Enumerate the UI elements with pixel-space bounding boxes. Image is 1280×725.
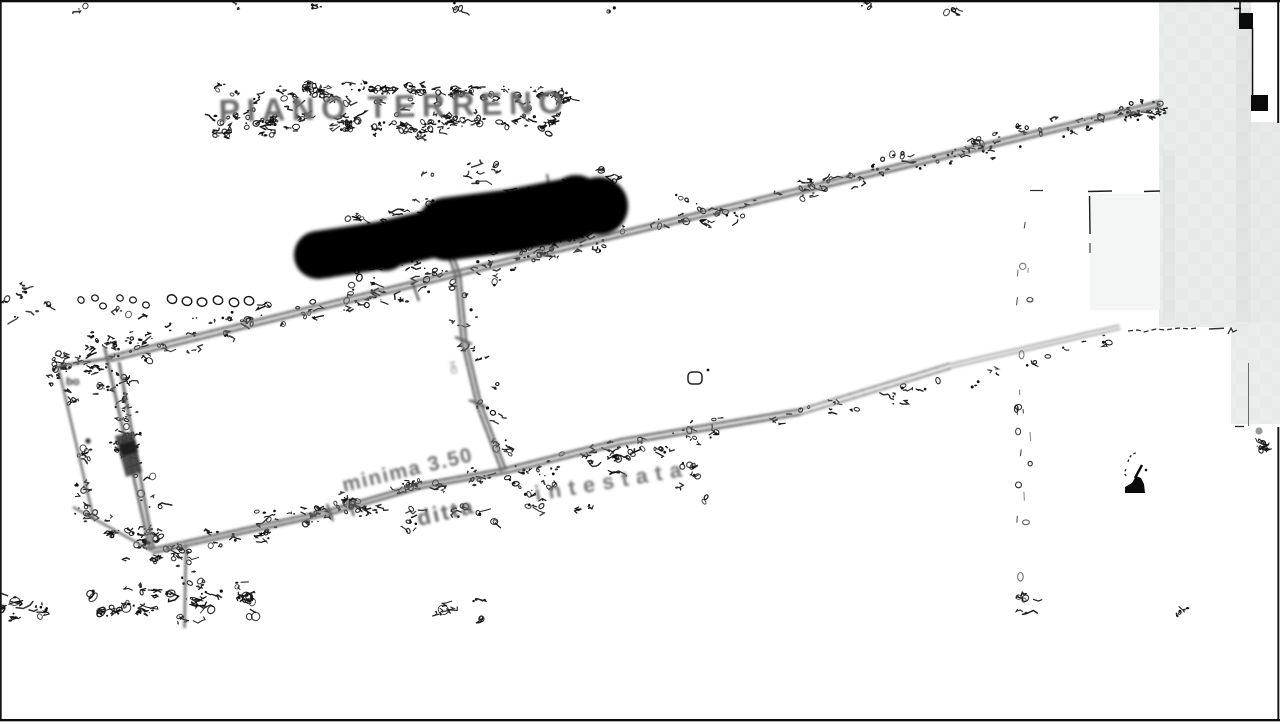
svg-text:bo: bo xyxy=(66,376,80,388)
